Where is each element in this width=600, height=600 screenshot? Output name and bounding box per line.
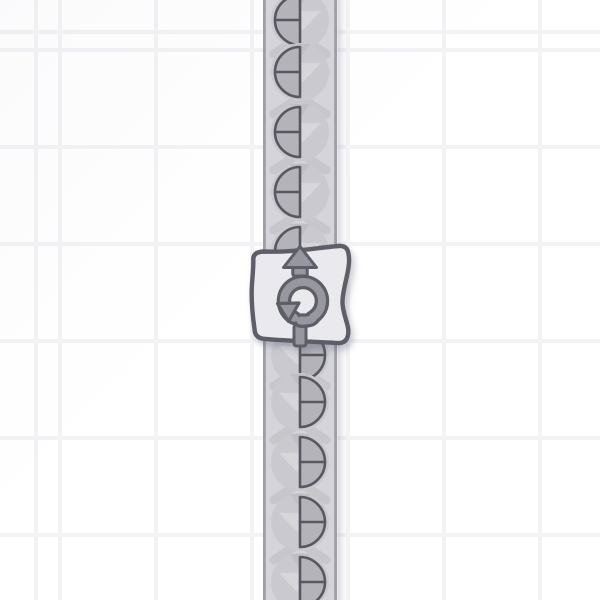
shape-item-right-half [271, 493, 329, 551]
rotator-building[interactable] [252, 246, 349, 346]
input-notch [294, 325, 306, 346]
shape-item-left-half [271, 43, 329, 101]
shape-item-right-half [271, 373, 329, 431]
game-canvas[interactable] [0, 0, 600, 600]
rotate-icon [278, 282, 322, 322]
shape-item-left-half [271, 163, 329, 221]
shape-item-right-half [271, 433, 329, 491]
shape-item-left-half [271, 103, 329, 161]
game-viewport[interactable] [0, 0, 600, 600]
